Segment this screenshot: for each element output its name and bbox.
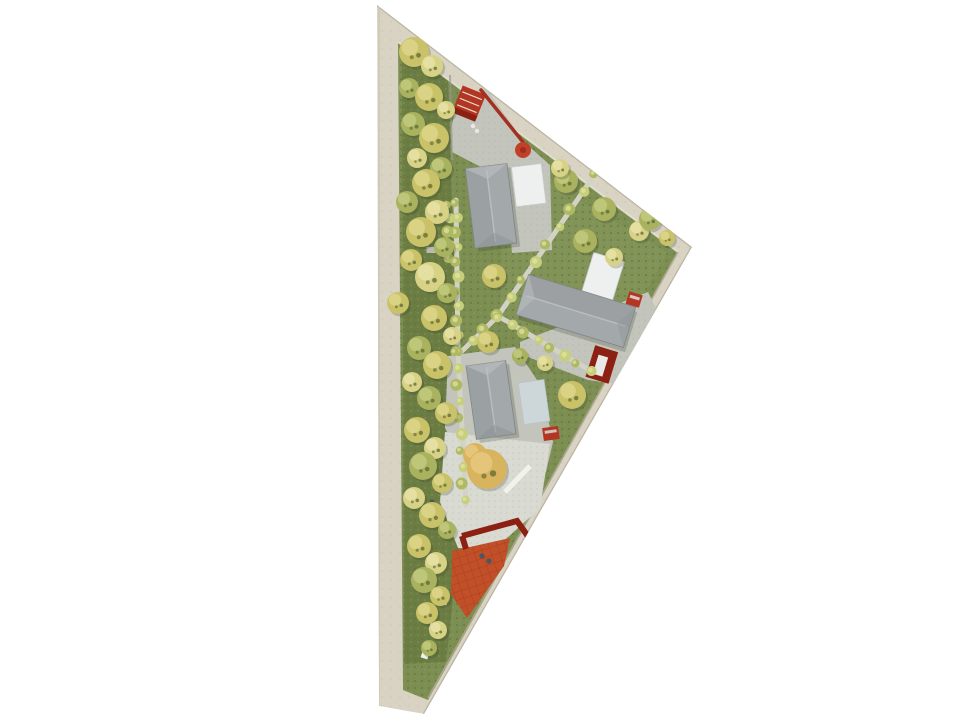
tree-highlight [439,102,449,112]
tree-speckle [445,248,448,251]
tree-highlight [484,266,497,279]
tree-speckle [434,215,437,218]
tree-speckle [416,53,421,58]
tree-speckle [426,581,430,585]
tree-speckle [426,280,430,284]
tree-highlight [470,452,492,474]
tree-highlight [432,588,443,599]
tree-speckle [404,204,407,207]
tree-speckle [568,398,572,402]
tree-speckle [443,484,446,487]
tree-speckle [433,565,436,568]
tree-speckle [421,547,425,551]
tree-speckle [429,68,432,71]
person-figure [479,553,484,558]
tree-highlight [409,219,426,236]
tree-speckle [561,169,564,172]
hedge-shrub-highlight [455,273,460,278]
tree-highlight [431,622,441,632]
tree-highlight [513,349,522,358]
tree-speckle [568,182,572,186]
hedge-shrub-highlight [572,360,576,364]
tree-speckle [416,549,419,552]
hedge-shrub-highlight [581,188,586,193]
hedge-shrub-highlight [536,337,540,341]
tree-speckle [490,343,494,347]
hedge-shrub-highlight [444,228,449,233]
tree-speckle [647,221,650,224]
tree-speckle [410,55,414,59]
hedge-shrub-highlight [518,277,522,281]
tree-speckle [436,139,441,144]
tree-speckle [441,249,444,252]
hedge-shrub-highlight [456,303,461,308]
tree-speckle [443,415,446,418]
tree-highlight [414,171,429,186]
tree-speckle [413,383,416,386]
tree-speckle [496,277,500,281]
tree-highlight [406,419,420,433]
tree-speckle [428,518,431,521]
tree-highlight [402,39,419,56]
hedge-shrub-highlight [519,329,524,334]
tree-highlight [409,338,422,351]
tree-speckle [425,467,429,471]
person-figure-light [475,129,479,133]
tree-highlight [436,239,447,250]
tree-highlight [432,159,444,171]
tree-highlight [403,114,416,127]
tree-speckle [426,401,429,404]
tree-speckle [400,304,404,308]
tree-speckle [411,500,414,503]
tree-highlight [594,199,607,212]
tree-speckle [434,67,438,71]
tree-speckle [430,321,433,324]
tree-speckle [441,597,444,600]
tree-highlight [440,522,450,532]
tree-speckle [414,160,417,163]
tree-speckle [443,169,447,173]
hedge-shrub-highlight [479,326,484,331]
tree-highlight [439,285,450,296]
tree-speckle [419,469,423,473]
hedge-shrub-highlight [460,464,465,469]
tree-speckle [432,450,435,453]
hedge-shrub-highlight [591,171,595,175]
tree-speckle [409,203,413,207]
tree-speckle [422,186,426,190]
hedge-shrub-highlight [588,368,593,373]
hedge-shrub-highlight [509,321,514,326]
tree-highlight [445,328,455,338]
tree-speckle [434,516,438,520]
tree-speckle [425,100,429,104]
tree-highlight [422,125,439,142]
tree-speckle [546,363,549,366]
tree-speckle [439,485,442,488]
tree-speckle [521,356,524,359]
tree-speckle [436,319,440,323]
red-shrub-core [520,147,526,153]
aerial-site-plan [0,0,960,720]
hedge-shrub-highlight [463,497,467,501]
hedge-shrub-highlight [532,258,537,263]
tree-speckle [430,141,434,145]
tree-speckle [668,238,671,241]
tree-highlight [413,569,427,583]
tree-speckle [413,261,417,265]
tree-highlight [411,454,426,469]
tree-highlight [437,404,449,416]
tree-speckle [449,338,451,340]
tree-speckle [615,258,618,261]
tree-highlight [421,504,435,518]
tree-speckle [437,598,440,601]
tree-speckle [439,366,443,370]
tree-highlight [401,80,412,91]
tree-highlight [427,202,440,215]
hedge-shrub-highlight [455,365,460,370]
tree-speckle [432,278,437,283]
hedge-shrub-highlight [557,224,561,228]
hedge-shrub-highlight [457,398,461,402]
tree-speckle [406,90,409,93]
tree-speckle [447,111,450,114]
hedge-shrub-highlight [495,315,499,319]
tree-speckle [430,648,433,651]
tree-speckle [652,220,656,224]
tree-speckle [574,396,578,400]
tree-highlight [641,210,653,222]
tree-highlight [423,57,435,69]
tree-speckle [421,349,425,353]
tree-highlight [425,353,440,368]
hedge-shrub-highlight [546,345,551,350]
tree-speckle [431,399,435,403]
tree-highlight [405,489,417,501]
tree-speckle [448,294,451,297]
tree-speckle [408,262,411,265]
tree-highlight [402,251,414,263]
tree-highlight [607,249,617,259]
person-figure-light [471,124,475,128]
hedge-shrub-highlight [458,480,463,485]
site-plan-render [0,0,960,720]
hedge-shrub-highlight [452,200,456,204]
tree-highlight [538,356,547,365]
tree-speckle [409,384,412,387]
tree-highlight [423,307,437,321]
tree-highlight [631,223,642,234]
tree-highlight [479,333,491,345]
tree-speckle [448,414,452,418]
tree-highlight [409,150,420,161]
tree-highlight [553,160,563,170]
tree-speckle [395,305,398,308]
tree-speckle [518,358,520,360]
tree-speckle [416,351,419,354]
tree-speckle [444,295,447,298]
tree-highlight [426,439,438,451]
tree-speckle [419,431,423,435]
tree-speckle [582,244,585,247]
tree-speckle [665,240,667,242]
tree-speckle [587,242,591,246]
house-3-annex-group [518,379,550,424]
house-1-annex [511,163,546,206]
hedge-shrub-highlight [508,294,513,299]
house-3-annex [518,379,550,424]
tree-highlight [560,383,575,398]
tree-speckle [438,564,442,568]
red-car-parcel-3 [542,426,560,441]
tree-highlight [660,231,669,240]
tree-speckle [601,212,604,215]
hedge-shrub-highlight [453,381,458,386]
hedge-shrub-highlight [452,317,457,322]
tree-highlight [398,193,410,205]
tree-highlight [418,604,430,616]
tree-speckle [444,532,446,534]
tree-speckle [435,632,437,634]
person-figure [486,558,491,563]
tree-speckle [481,473,486,478]
tree-speckle [417,235,421,239]
tree-speckle [415,125,419,129]
tree-speckle [433,368,437,372]
tree-speckle [490,470,496,476]
tree-speckle [431,98,435,102]
tree-speckle [485,344,488,347]
tree-speckle [640,232,643,235]
tree-highlight [427,554,439,566]
tree-highlight [418,264,435,281]
hedge-shrub-highlight [542,241,547,246]
tree-speckle [423,233,428,238]
tree-highlight [409,536,422,549]
tree-speckle [491,279,494,282]
hedge-shrub-highlight [458,431,463,436]
tree-speckle [413,433,416,436]
tree-speckle [543,365,545,367]
tree-highlight [417,85,432,100]
hedge-shrub-highlight [470,337,475,342]
tree-speckle [563,184,566,187]
tree-highlight [434,475,445,486]
red-car-body-2 [542,426,560,441]
tree-speckle [438,170,441,173]
hedge-shrub-highlight [566,206,571,211]
hedge-shrub-highlight [452,349,456,353]
tree-highlight [419,388,432,401]
tree-highlight [404,374,415,385]
tree-speckle [437,449,441,453]
hedge-shrub-highlight [457,448,461,452]
tree-speckle [427,650,429,652]
tree-speckle [420,583,423,586]
tree-highlight [422,641,431,650]
tree-speckle [424,615,427,618]
tree-speckle [439,631,442,634]
tree-speckle [606,210,610,214]
tree-speckle [410,127,413,130]
tree-speckle [416,499,420,503]
hedge-shrub-highlight [562,352,567,357]
tree-speckle [439,213,443,217]
tree-highlight [575,231,588,244]
tree-speckle [429,614,433,618]
tree-speckle [453,337,456,340]
tree-highlight [389,294,401,306]
tree-speckle [428,184,432,188]
tree-speckle [448,531,451,534]
tree-speckle [636,233,639,236]
tree-speckle [443,112,445,114]
tree-speckle [557,170,559,172]
tree-speckle [410,89,413,92]
tree-speckle [418,159,421,162]
tree-speckle [611,259,613,261]
